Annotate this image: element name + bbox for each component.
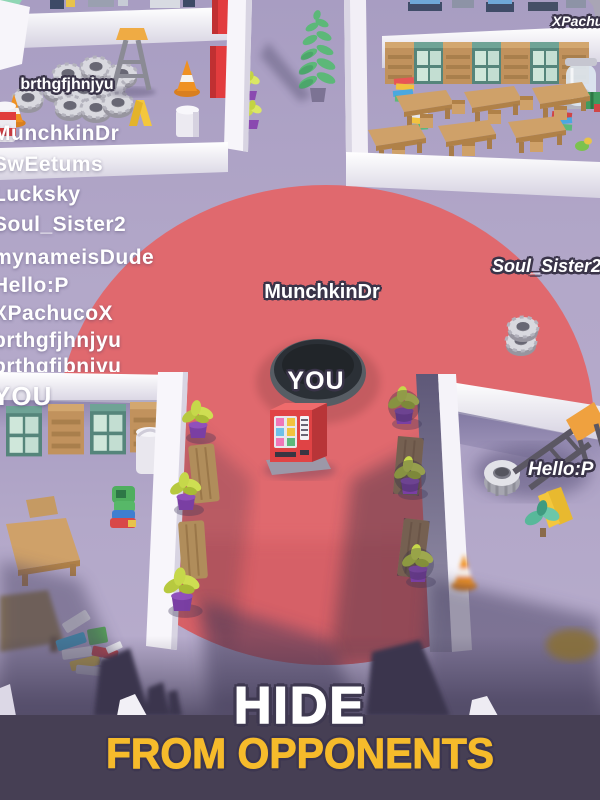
player-label: Hello:P bbox=[528, 459, 593, 481]
you-label: YOU bbox=[287, 367, 344, 396]
player-label-text: brthgfjhnjyu bbox=[20, 76, 113, 94]
player-label: brthgfjhnjyu bbox=[67, 76, 160, 94]
striped-barrel bbox=[0, 102, 16, 143]
player-label: MunchkinDr bbox=[264, 281, 380, 304]
banner-title: HIDE bbox=[234, 676, 366, 736]
trash-bin bbox=[176, 106, 199, 138]
game-viewport[interactable]: MunchkinDr SwEetums Lucksky Soul_Sister2… bbox=[0, 0, 600, 800]
vending-machine bbox=[264, 403, 336, 479]
player-label: Soul_Sister2 bbox=[492, 256, 600, 277]
cabinet-row bbox=[385, 42, 589, 84]
stacked-tires bbox=[506, 317, 538, 356]
blurred-sign bbox=[546, 629, 598, 661]
wall bbox=[0, 372, 178, 404]
banner-subtitle: FROM OPPONENTS bbox=[106, 730, 494, 779]
tire-prop bbox=[484, 460, 520, 496]
player-label: XPachucoX bbox=[552, 13, 600, 29]
